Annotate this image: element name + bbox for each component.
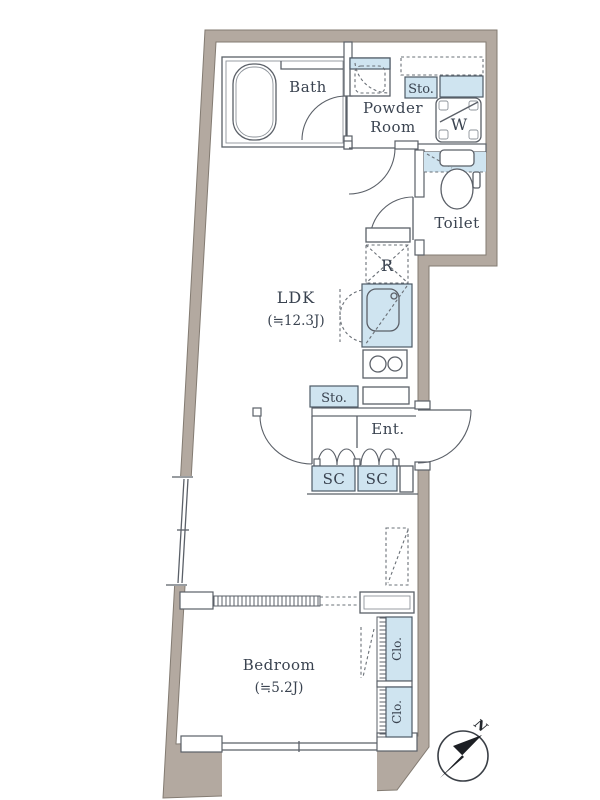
ldk-entrance-door [260, 416, 312, 464]
closet-door-swing-dashed [361, 627, 374, 678]
bedroom-label: Bedroom [243, 656, 315, 674]
kitchen: R [340, 228, 412, 404]
closet-2: Clo. [377, 687, 412, 737]
upper-shelf-dashed [401, 57, 483, 75]
storage-hall-label: Sto. [321, 391, 347, 406]
window-post-left [181, 736, 222, 752]
counter-box [440, 76, 483, 97]
powder-label-2: Room [370, 118, 416, 136]
storage-powder-label: Sto. [408, 82, 434, 97]
shoe-closet-doors [314, 449, 399, 466]
toilet-fixture [440, 150, 480, 209]
bathtub [233, 64, 276, 140]
bedroom-area: (≒5.2J) [255, 680, 304, 696]
floorplan-canvas: Bath Powder Room Sto. [0, 0, 600, 800]
toilet-label: Toilet [434, 214, 479, 232]
entrance: Sto. SC SC Ent. [253, 386, 471, 494]
hall-cabinet-dashed [386, 528, 408, 585]
kitchen-shelf [366, 228, 410, 242]
powder-label-1: Powder [363, 99, 423, 117]
entrance-label: Ent. [371, 420, 404, 438]
left-window [165, 476, 193, 586]
front-door [415, 401, 471, 470]
room-bedroom: Bedroom (≒5.2J) Clo. Clo. [180, 592, 414, 737]
floorplan-drawing: Bath Powder Room Sto. [0, 0, 600, 800]
room-ldk: LDK (≒12.3J) [267, 288, 324, 329]
refrigerator-label: R [381, 256, 394, 275]
kitchen-end-cabinet [363, 387, 409, 404]
bath-label: Bath [289, 78, 327, 96]
compass: N [438, 716, 490, 781]
refrigerator-space: R [366, 245, 408, 283]
room-bath: Bath [222, 57, 347, 147]
closet-1-label: Clo. [390, 637, 404, 661]
bedroom-sliding-door [213, 596, 320, 606]
closet-1: Clo. [377, 617, 412, 681]
kitchen-sink-counter [362, 284, 412, 347]
north-arrow [440, 735, 482, 778]
stove [363, 350, 407, 378]
ldk-label: LDK [277, 288, 315, 307]
closet-2-label: Clo. [390, 700, 404, 724]
shoe-closet-1-label: SC [323, 470, 346, 488]
washer-label: W [451, 115, 468, 134]
washing-machine: W [436, 98, 481, 142]
room-powder: Powder Room [344, 42, 423, 194]
powder-door [349, 148, 395, 194]
shoe-closet-2-label: SC [366, 470, 389, 488]
ldk-area: (≒12.3J) [267, 313, 324, 329]
wash-basin [350, 58, 390, 96]
